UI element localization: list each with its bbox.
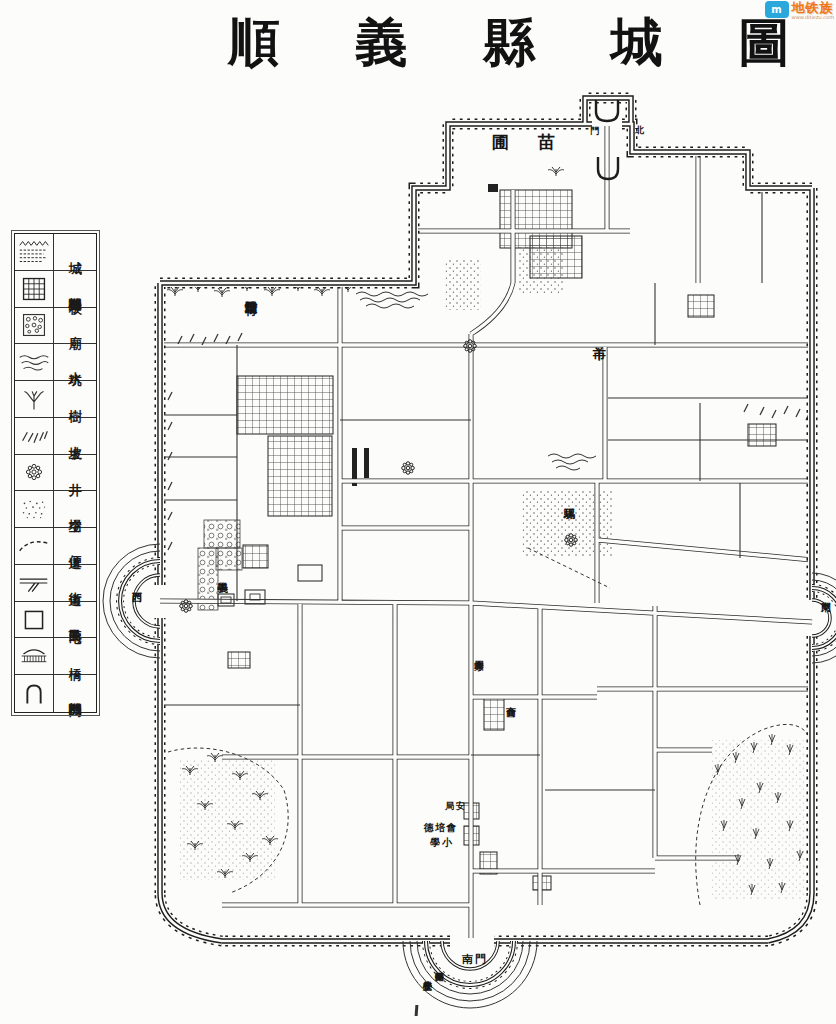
map-legend: 城 機關學校 廟 [14, 233, 97, 713]
legend-row: 橋 [15, 638, 96, 675]
south-gate-label: 南門 [462, 954, 488, 966]
legend-label: 機關門 [68, 692, 82, 695]
legend-label: 城 [68, 251, 82, 252]
west-gate-label: 西門 [131, 584, 142, 614]
institution-school-symbol-icon [15, 271, 54, 307]
mule-horse-market-label: 騾馬 [563, 499, 575, 529]
institution-blocks [228, 184, 776, 890]
well-symbol-icon [15, 455, 54, 491]
militia-label: 保衛團 [434, 965, 443, 1001]
watermark: m 地铁族 www.ditiezu.com [765, 1, 834, 20]
legend-row: 城 [15, 234, 96, 271]
legend-label: 土坡 [68, 435, 82, 437]
bridge-symbol-icon [15, 638, 54, 674]
east-gate-label: 東門 [820, 594, 831, 624]
legend-label: 商民宅 [68, 618, 82, 621]
school-label-row2: 學小 [430, 838, 454, 849]
street-symbol-icon [15, 565, 54, 601]
legend-row: 商民宅 [15, 602, 96, 639]
title-char: 圖 [738, 17, 790, 69]
legend-row: 井 [15, 455, 96, 492]
earth-slope-symbol-icon [15, 418, 54, 454]
office-gate-symbol-icon [15, 675, 54, 712]
watermark-url: www.ditiezu.com [792, 15, 834, 20]
title-char: 縣 [483, 17, 535, 69]
legend-row: 機關門 [15, 675, 96, 712]
legend-label: 樹 [68, 398, 82, 399]
map-canvas [0, 0, 836, 1024]
police-bureau-label: 局安 [445, 802, 467, 811]
map-logo-icon: m [765, 1, 789, 18]
charity-school-label: 義學 [217, 573, 228, 603]
legend-row: 街道 [15, 565, 96, 602]
city-wall-symbol-icon [15, 234, 54, 270]
north-gate-label-right: 北 [635, 126, 644, 135]
sports-ground-label: 民衆體育場 [185, 291, 257, 327]
water-pit-symbol-icon [15, 344, 54, 380]
legend-label: 橋 [68, 656, 82, 657]
legend-label: 便道 [68, 545, 82, 547]
public-primary-school-label: 公立小學校 [422, 974, 431, 1024]
legend-row: 樹 [15, 381, 96, 418]
map-title: 順 義 縣 城 圖 [228, 10, 790, 76]
chamber-of-commerce-label: 商會 [505, 699, 516, 727]
legend-label: 街道 [68, 582, 82, 584]
school-label-row1: 德培會 [424, 823, 457, 834]
legend-row: 便道 [15, 528, 96, 565]
legend-row: 水坑 [15, 344, 96, 381]
legend-row: 空場 [15, 491, 96, 528]
temple-symbol-icon [15, 308, 54, 344]
water-pits [356, 292, 596, 470]
legend-row: 廟 [15, 308, 96, 345]
title-char: 順 [228, 17, 280, 69]
nursery-label: 圃 苗 [492, 134, 561, 152]
watermark-brand: 地铁族 [792, 1, 834, 14]
scanned-map-page: 順 義 縣 城 圖 m 地铁族 www.ditiezu.com 城 [0, 0, 836, 1024]
legend-row: 機關學校 [15, 271, 96, 308]
tree-symbol-icon [15, 381, 54, 417]
temple-street-label: 周家寺 [473, 653, 483, 693]
north-gate-label-left: 門 [590, 127, 599, 136]
byway-symbol-icon [15, 528, 54, 564]
legend-label: 空場 [68, 508, 82, 510]
title-char: 城 [611, 17, 663, 69]
sheep-market-label: 羊市 [592, 336, 606, 376]
legend-label: 井 [68, 472, 82, 473]
legend-label: 機關學校 [68, 287, 82, 291]
open-ground-symbol-icon [15, 491, 54, 527]
legend-label: 廟 [68, 325, 82, 326]
title-char: 義 [356, 17, 408, 69]
legend-label: 水坑 [68, 361, 82, 363]
legend-row: 土坡 [15, 418, 96, 455]
residence-symbol-icon [15, 602, 54, 638]
